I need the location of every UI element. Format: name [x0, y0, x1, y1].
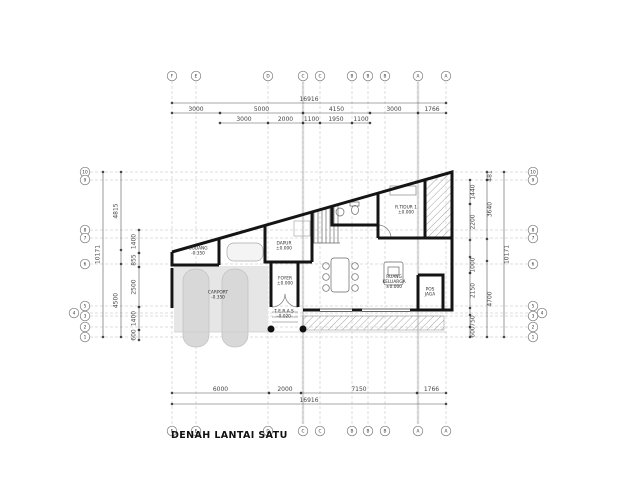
- grid-marker-label: 10: [530, 170, 536, 176]
- dimension-label: 4815: [113, 203, 120, 218]
- dim-tick: [119, 248, 122, 251]
- grid-marker-label: A: [417, 429, 420, 435]
- dim-tick: [218, 111, 221, 114]
- grid-marker-label: 6: [532, 262, 535, 268]
- room-label-pos-jaga: POSJAGA: [424, 287, 435, 298]
- columns: [268, 326, 307, 333]
- dimension-label: 855: [131, 254, 138, 266]
- dim-tick: [101, 170, 104, 173]
- grid-marker-label: 7: [84, 236, 87, 242]
- dimension-label: 1950: [328, 116, 343, 123]
- grid-marker-label: 4: [73, 311, 76, 317]
- room-label-line: ±0.000: [276, 246, 292, 252]
- grid-marker-label: 9: [84, 178, 87, 184]
- grid-marker: B: [363, 426, 373, 436]
- grid-marker: C: [315, 426, 325, 436]
- dim-tick: [137, 328, 140, 331]
- room-label-line: JAGA: [424, 292, 435, 298]
- grid-marker: E: [191, 71, 201, 81]
- grid-marker-label: 4: [541, 311, 544, 317]
- grid-marker: C: [298, 71, 308, 81]
- dimension-label: 3640: [487, 202, 494, 217]
- room-label-line: -0.020: [277, 314, 291, 320]
- dimension-label: 4500: [113, 293, 120, 308]
- grid-marker: B: [380, 71, 390, 81]
- dimension-label: 10171: [504, 245, 511, 264]
- dimension-label: 1000: [470, 257, 477, 272]
- dim-tick: [485, 335, 488, 338]
- grid-marker-label: B: [384, 429, 387, 435]
- grid-marker-label: 9: [532, 178, 535, 184]
- room-label-line: -0.350: [191, 251, 205, 257]
- dimension-label: 16916: [299, 397, 318, 404]
- dim-tick: [137, 338, 140, 341]
- dimension-label: 600: [470, 326, 477, 338]
- dimension-label: 3000: [188, 106, 203, 113]
- grid-marker-label: 2: [84, 325, 87, 331]
- dimension-label: 16916: [299, 96, 318, 103]
- dining-set: [323, 258, 359, 292]
- carport-area: [174, 266, 268, 347]
- grid-marker-label: C: [318, 429, 321, 435]
- grid-marker-label: 1: [532, 335, 535, 341]
- room-label-line: ±0.000: [277, 281, 293, 287]
- grid-marker-label: A: [417, 74, 420, 80]
- dimension-label: 3000: [386, 106, 401, 113]
- grid-marker-label: 1: [84, 335, 87, 341]
- grid-marker-label: C: [318, 74, 321, 80]
- grid-marker-label: C: [301, 429, 304, 435]
- grid-marker-label: B: [367, 74, 370, 80]
- dimension-label: 3000: [236, 116, 251, 123]
- dimension-label: 10171: [95, 245, 102, 264]
- grid-marker-label: E: [195, 74, 198, 80]
- grid-marker-label: 3: [532, 314, 535, 320]
- grid-marker: 6: [80, 259, 90, 269]
- grid-marker-label: 2: [532, 325, 535, 331]
- dim-tick: [485, 259, 488, 262]
- dim-tick: [468, 178, 471, 181]
- grid-marker: 7: [528, 233, 538, 243]
- dim-tick: [170, 402, 173, 405]
- dimension-label: 6000: [213, 386, 228, 393]
- dim-tick: [444, 391, 447, 394]
- grid-marker: 9: [528, 175, 538, 185]
- dimension-label: 2000: [278, 116, 293, 123]
- room-label-gudang: GUDANG-0.350: [188, 246, 207, 257]
- grid-marker: A: [413, 71, 423, 81]
- grid-marker-label: 10: [82, 170, 88, 176]
- dim-tick: [170, 101, 173, 104]
- dimension-label: 1766: [424, 386, 439, 393]
- dimension-label: 2000: [277, 386, 292, 393]
- room-label-foyer: FOYER±0.000: [277, 276, 293, 287]
- drawing-title: DENAH LANTAI SATU: [171, 430, 288, 441]
- grid-marker: B: [347, 426, 357, 436]
- grid-marker: A: [441, 71, 451, 81]
- grid-marker-label: 8: [532, 228, 535, 234]
- grid-marker-label: B: [384, 74, 387, 80]
- windows: [320, 308, 410, 313]
- dim-tick: [119, 170, 122, 173]
- dim-tick: [444, 111, 447, 114]
- grid-marker: A: [441, 426, 451, 436]
- dim-tick: [119, 262, 122, 265]
- dim-tick: [444, 101, 447, 104]
- dim-tick: [170, 111, 173, 114]
- dim-tick: [468, 306, 471, 309]
- dimension-label: 1100: [304, 116, 319, 123]
- dim-tick: [444, 402, 447, 405]
- grid-marker: A: [413, 426, 423, 436]
- dim-tick: [101, 335, 104, 338]
- grid-marker: 3: [528, 311, 538, 321]
- room-label-line: ±0.000: [398, 210, 414, 216]
- grid-marker: 6: [528, 259, 538, 269]
- kitchen-counter: [227, 243, 263, 261]
- grid-marker: 4: [69, 308, 79, 318]
- grid-marker: 4: [537, 308, 547, 318]
- dim-tick: [468, 202, 471, 205]
- dimension-label: 1440: [470, 184, 477, 199]
- grid-marker-label: B: [367, 429, 370, 435]
- grid-marker: 9: [80, 175, 90, 185]
- room-label-dapur: DAPUR±0.000: [276, 241, 292, 252]
- dim-tick: [368, 111, 371, 114]
- grid-marker-label: C: [301, 74, 304, 80]
- room-label-r-tidur-1: R.TIDUR 1±0.000: [395, 205, 417, 216]
- dim-tick: [137, 265, 140, 268]
- dim-tick: [368, 121, 371, 124]
- room-label-line: -0.350: [211, 295, 225, 301]
- floor-plan-page: FFEEDDCCCCBBBBBBAAAA10109988776655443322…: [0, 0, 640, 480]
- grid-marker-label: 5: [84, 304, 87, 310]
- grid-marker: F: [167, 71, 177, 81]
- column-dot: [300, 326, 307, 333]
- dimension-label: 2500: [131, 279, 138, 294]
- grid-marker-label: 7: [532, 236, 535, 242]
- dimension-label: 1100: [353, 116, 368, 123]
- dimension-label: 7150: [351, 386, 366, 393]
- dimension-label: 2150: [470, 283, 477, 298]
- dimension-label: 5000: [254, 106, 269, 113]
- grid-marker-label: 3: [84, 314, 87, 320]
- grid-marker: B: [380, 426, 390, 436]
- grid-marker: 5: [80, 301, 90, 311]
- grid-marker: D: [263, 71, 273, 81]
- side-terrace-hatch: [425, 172, 452, 238]
- dim-tick: [119, 335, 122, 338]
- dim-tick: [137, 251, 140, 254]
- grid-marker: B: [363, 71, 373, 81]
- grid-marker: 1: [80, 332, 90, 342]
- walkway-hatch: [303, 316, 444, 330]
- grid-marker: 2: [80, 322, 90, 332]
- grid-marker: 1: [528, 332, 538, 342]
- column-dot: [268, 326, 275, 333]
- dim-tick: [170, 391, 173, 394]
- dim-tick: [218, 121, 221, 124]
- dimension-label: 4700: [487, 291, 494, 306]
- dim-tick: [266, 121, 269, 124]
- grid-marker: 2: [528, 322, 538, 332]
- grid-marker-label: A: [445, 74, 448, 80]
- grid-marker: 5: [528, 301, 538, 311]
- grid-marker-label: 8: [84, 228, 87, 234]
- grid-marker-label: B: [351, 429, 354, 435]
- dimension-label: 4150: [329, 106, 344, 113]
- carport-strip: [183, 269, 209, 347]
- floor-plan-canvas: FFEEDDCCCCBBBBBBAAAA10109988776655443322…: [0, 0, 640, 480]
- grid-marker-label: 6: [84, 262, 87, 268]
- carport-strip: [222, 269, 248, 347]
- dimension-label: 1400: [131, 311, 138, 326]
- dimension-label: 1766: [424, 106, 439, 113]
- dimension-label: 2200: [470, 214, 477, 229]
- grid-marker-label: B: [351, 74, 354, 80]
- dimension-label: 750: [470, 315, 477, 327]
- dimension-label: 600: [131, 329, 138, 341]
- grid-marker-label: 5: [532, 304, 535, 310]
- grid-marker: C: [315, 71, 325, 81]
- dimension-label: 1400: [131, 234, 138, 249]
- grid-marker: C: [298, 426, 308, 436]
- room-label-line: ±0.000: [386, 284, 402, 290]
- grid-marker: 7: [80, 233, 90, 243]
- dim-tick: [468, 238, 471, 241]
- room-label-teras: T E R A S-0.020: [273, 309, 294, 320]
- grid-marker: 3: [80, 311, 90, 321]
- dim-tick: [502, 170, 505, 173]
- grid-marker-label: A: [445, 429, 448, 435]
- grid-marker: B: [347, 71, 357, 81]
- dim-tick: [137, 228, 140, 231]
- dim-tick: [502, 335, 505, 338]
